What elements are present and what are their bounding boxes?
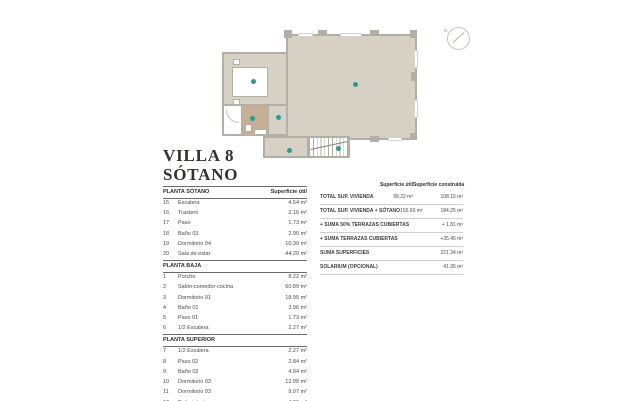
table-row: 71/2 Escalera2.27 m² (163, 347, 307, 357)
room-marker (276, 115, 281, 120)
room-number: 20 (163, 252, 178, 258)
room-area-value: 4.54 m² (288, 201, 307, 207)
room-number: 15 (163, 201, 178, 207)
table-row: 19Dormitorio 0410.30 m² (163, 240, 307, 250)
page-title-line1: VILLA 8 (163, 146, 234, 165)
room-name: Escalera (178, 201, 288, 207)
room-area-value: 1.73 m² (288, 221, 307, 227)
column-header-superficie-util: Superficie útil (361, 183, 413, 188)
summary-row: + SUMA 50% TERRAZAS CUBIERTAS+ 1.81 m² (320, 219, 463, 233)
summary-row: SOLARIUM (OPCIONAL)41.35 m² (320, 261, 463, 275)
toilet-icon (245, 124, 252, 132)
room-number: 18 (163, 232, 178, 238)
table-row: 3Dormitorio 0118.95 m² (163, 293, 307, 303)
room-name: Dormitorio 03 (178, 390, 288, 396)
room-trastero (263, 136, 309, 158)
table-row: 9Baño 024.04 m² (163, 367, 307, 377)
page-title-line2: SÓTANO (163, 165, 238, 184)
room-area-value: 18.95 m² (285, 296, 307, 302)
room-number: 2 (163, 285, 178, 291)
table-row: 16Trastero2.16 m² (163, 209, 307, 219)
summary-label: SUMA SUPERFICIES (320, 251, 388, 256)
room-name: Dormitorio 01 (178, 296, 285, 302)
room-marker (353, 82, 358, 87)
page-title: VILLA 8 SÓTANO (163, 146, 238, 184)
room-name: 1/2 Escalera (178, 326, 288, 332)
room-number: 3 (163, 296, 178, 302)
summary-util-value: 99.22 m² (388, 195, 413, 200)
room-area-value: 1.73 m² (288, 316, 307, 322)
room-area-value: 10.30 m² (285, 242, 307, 248)
room-area-value: 2.16 m² (288, 211, 307, 217)
room-area-value: 60.89 m² (285, 285, 307, 291)
room-name: Paso 02 (178, 360, 288, 366)
summary-areas-table: Superficie útilSuperficie construidaTOTA… (320, 183, 463, 275)
window (388, 137, 402, 141)
table-row: 15Escalera4.54 m² (163, 199, 307, 209)
section-header-label: PLANTA BAJA (163, 264, 201, 270)
column-header-superficie-util: Superficie útil (271, 190, 307, 196)
table-row: 20Sala de estar44.20 m² (163, 250, 307, 260)
floor-plan (222, 12, 422, 162)
summary-construida-value: 41.35 m² (413, 265, 463, 270)
table-row: 10Dormitorio 0212.08 m² (163, 378, 307, 388)
room-marker (251, 79, 256, 84)
wall-pillar (410, 133, 417, 140)
table-row: 8Paso 022.84 m² (163, 357, 307, 367)
wall-pillar (318, 30, 327, 36)
summary-header-row: Superficie útilSuperficie construida (320, 183, 463, 191)
table-row: 18Baño 032.90 m² (163, 229, 307, 239)
summary-construida-value: 108.15 m² (413, 195, 463, 200)
window (414, 100, 418, 118)
window (298, 33, 313, 37)
sink-icon (254, 129, 267, 135)
wall-pillar (410, 30, 417, 38)
room-number: 5 (163, 316, 178, 322)
wall-pillar (284, 30, 292, 38)
room-area-value: 2.90 m² (288, 232, 307, 238)
summary-construida-value: 221.34 m² (413, 251, 463, 256)
window (340, 33, 362, 37)
plan-sheet: N VILLA 8 SÓTANO PLANTA SÓTANOSuperficie… (0, 0, 630, 401)
room-name: Porche (178, 275, 288, 281)
summary-label: SOLARIUM (OPCIONAL) (320, 265, 388, 270)
room-number: 8 (163, 360, 178, 366)
room-number: 7 (163, 349, 178, 355)
compass-north-label: N (444, 28, 447, 33)
table-row: 1Porche8.22 m² (163, 273, 307, 283)
room-name: 1/2 Escalera (178, 349, 288, 355)
table-row: 11Dormitorio 039.07 m² (163, 388, 307, 398)
room-name: Salón-comedor-cocina (178, 285, 285, 291)
section-header: PLANTA BAJA (163, 260, 307, 273)
room-name: Paso 01 (178, 316, 288, 322)
room-name: Baño 01 (178, 306, 288, 312)
summary-label: TOTAL SUP. VIVIENDA + SÓTANO (320, 209, 400, 214)
window (414, 50, 418, 68)
summary-label: + SUMA TERRAZAS CUBIERTAS (320, 237, 398, 242)
table-row: 61/2 Escalera2.27 m² (163, 324, 307, 334)
room-name: Dormitorio 04 (178, 242, 285, 248)
room-name: Dormitorio 02 (178, 380, 285, 386)
room-area-value: 4.04 m² (288, 370, 307, 376)
room-marker (336, 146, 341, 151)
summary-row: SUMA SUPERFICIES221.34 m² (320, 247, 463, 261)
room-area-value: 3.96 m² (288, 306, 307, 312)
room-marker (287, 148, 292, 153)
summary-construida-value: +35.45 m² (419, 237, 463, 242)
wall-pillar (370, 136, 379, 142)
section-header-label: PLANTA SUPERIOR (163, 338, 215, 344)
summary-row: TOTAL SUP. VIVIENDA99.22 m²108.15 m² (320, 191, 463, 205)
room-number: 16 (163, 211, 178, 217)
room-number: 9 (163, 370, 178, 376)
room-name: Paso (178, 221, 288, 227)
summary-util-value: 155.60 m² (400, 209, 423, 214)
room-number: 19 (163, 242, 178, 248)
section-header: PLANTA SÓTANOSuperficie útil (163, 186, 307, 199)
room-marker (250, 116, 255, 121)
room-area-value: 44.20 m² (285, 252, 307, 258)
room-area-value: 2.27 m² (288, 349, 307, 355)
section-header: PLANTA SUPERIOR (163, 334, 307, 347)
wall-pillar (411, 72, 417, 81)
summary-construida-value: + 1.81 m² (427, 223, 463, 228)
table-row: 5Paso 011.73 m² (163, 314, 307, 324)
room-number: 6 (163, 326, 178, 332)
room-area-value: 2.84 m² (288, 360, 307, 366)
room-name: Baño 03 (178, 232, 288, 238)
column-header-superficie-construida: Superficie construida (413, 183, 463, 188)
table-row: 17Paso1.73 m² (163, 219, 307, 229)
room-area-value: 2.27 m² (288, 326, 307, 332)
room-number: 1 (163, 275, 178, 281)
room-number: 11 (163, 390, 178, 396)
summary-construida-value: 184.25 m² (423, 209, 463, 214)
wall-pillar (370, 30, 379, 36)
room-name: Trastero (178, 211, 288, 217)
bed-icon (232, 67, 268, 97)
compass-circle (447, 27, 470, 50)
summary-label: TOTAL SUP. VIVIENDA (320, 195, 388, 200)
table-row: 2Salón-comedor-cocina60.89 m² (163, 283, 307, 293)
room-sala-de-estar (286, 34, 417, 140)
section-header-label: PLANTA SÓTANO (163, 190, 209, 196)
nightstand-icon (233, 59, 240, 65)
room-area-value: 8.22 m² (288, 275, 307, 281)
room-name: Baño 02 (178, 370, 288, 376)
summary-row: TOTAL SUP. VIVIENDA + SÓTANO155.60 m²184… (320, 205, 463, 219)
room-areas-table: PLANTA SÓTANOSuperficie útil15Escalera4.… (163, 186, 307, 401)
room-number: 10 (163, 380, 178, 386)
room-name: Sala de estar (178, 252, 285, 258)
room-number: 17 (163, 221, 178, 227)
room-number: 4 (163, 306, 178, 312)
summary-row: + SUMA TERRAZAS CUBIERTAS+35.45 m² (320, 233, 463, 247)
summary-label: + SUMA 50% TERRAZAS CUBIERTAS (320, 223, 409, 228)
room-area-value: 9.07 m² (288, 390, 307, 396)
table-row: 4Baño 013.96 m² (163, 304, 307, 314)
compass-icon: N (444, 24, 470, 50)
room-area-value: 12.08 m² (285, 380, 307, 386)
